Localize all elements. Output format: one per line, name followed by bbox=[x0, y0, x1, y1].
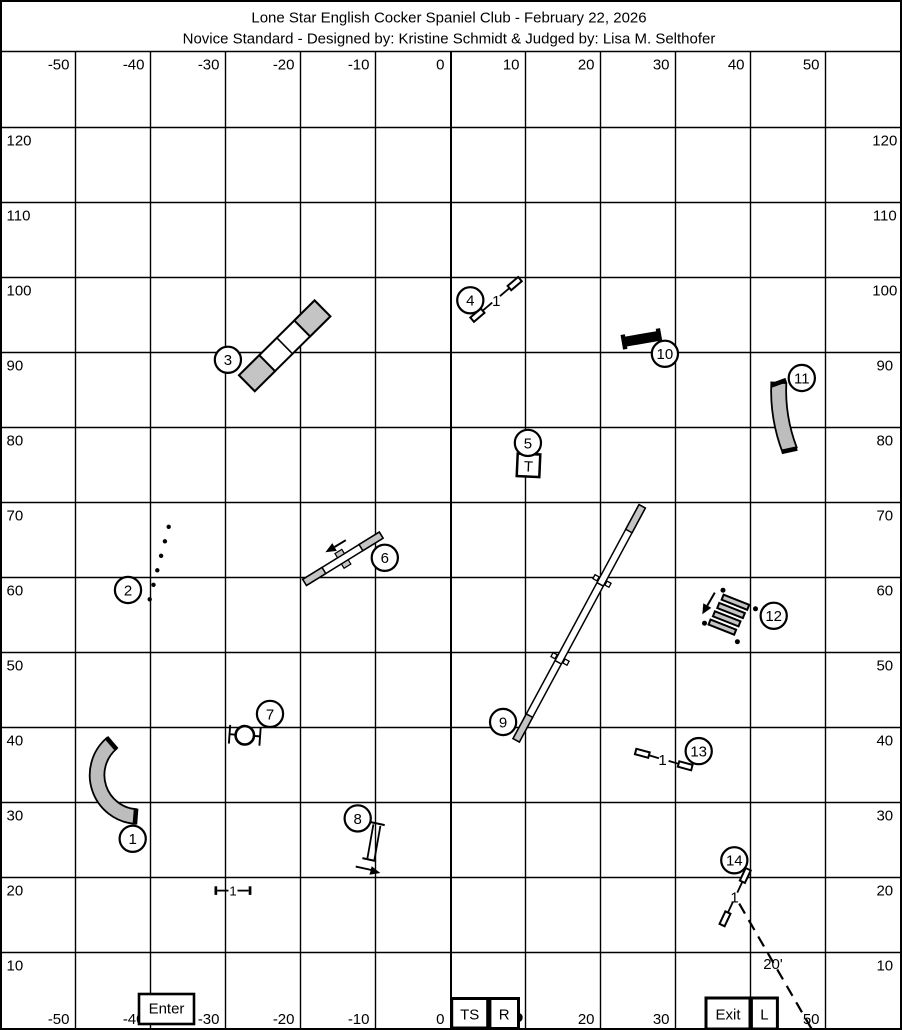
svg-text:14: 14 bbox=[726, 853, 743, 870]
svg-text:12: 12 bbox=[765, 608, 782, 625]
svg-text:L: L bbox=[760, 1006, 768, 1023]
svg-text:20: 20 bbox=[876, 883, 893, 900]
svg-text:-30: -30 bbox=[198, 1011, 220, 1028]
svg-text:60: 60 bbox=[876, 583, 893, 600]
svg-text:10: 10 bbox=[7, 958, 24, 975]
svg-text:11: 11 bbox=[794, 370, 810, 387]
svg-text:6: 6 bbox=[381, 550, 389, 567]
svg-text:20: 20 bbox=[578, 57, 595, 74]
svg-text:30: 30 bbox=[653, 1011, 670, 1028]
svg-text:1: 1 bbox=[492, 293, 500, 310]
svg-text:70: 70 bbox=[876, 508, 893, 525]
svg-text:1: 1 bbox=[229, 883, 236, 898]
svg-text:Enter: Enter bbox=[149, 1001, 185, 1018]
svg-text:90: 90 bbox=[876, 358, 893, 375]
svg-text:8: 8 bbox=[354, 811, 362, 828]
svg-text:-20: -20 bbox=[273, 57, 295, 74]
svg-text:7: 7 bbox=[266, 706, 274, 723]
svg-text:50: 50 bbox=[803, 57, 820, 74]
svg-text:80: 80 bbox=[7, 433, 24, 450]
svg-text:20: 20 bbox=[578, 1011, 595, 1028]
svg-text:120: 120 bbox=[7, 133, 32, 150]
svg-text:80: 80 bbox=[876, 433, 893, 450]
svg-text:0: 0 bbox=[436, 1011, 444, 1028]
svg-text:2: 2 bbox=[124, 582, 132, 599]
svg-text:100: 100 bbox=[7, 283, 32, 300]
svg-text:0: 0 bbox=[436, 57, 444, 74]
svg-text:70: 70 bbox=[7, 508, 24, 525]
svg-text:1: 1 bbox=[730, 890, 738, 907]
svg-text:Lone Star English Cocker Spani: Lone Star English Cocker Spaniel Club - … bbox=[251, 10, 646, 27]
svg-text:30: 30 bbox=[653, 57, 670, 74]
svg-text:4: 4 bbox=[466, 293, 474, 310]
svg-text:30: 30 bbox=[876, 808, 893, 825]
svg-text:5: 5 bbox=[524, 435, 532, 452]
svg-text:40: 40 bbox=[876, 733, 893, 750]
svg-text:20: 20 bbox=[7, 883, 24, 900]
svg-text:-10: -10 bbox=[348, 1011, 370, 1028]
svg-text:-50: -50 bbox=[48, 1011, 70, 1028]
svg-text:13: 13 bbox=[690, 744, 707, 761]
svg-text:110: 110 bbox=[7, 208, 31, 225]
svg-text:20': 20' bbox=[763, 956, 783, 973]
svg-text:R: R bbox=[499, 1007, 510, 1024]
svg-text:10: 10 bbox=[503, 57, 520, 74]
svg-text:40: 40 bbox=[7, 733, 24, 750]
svg-text:TS: TS bbox=[460, 1007, 479, 1024]
svg-text:50: 50 bbox=[7, 658, 24, 675]
svg-text:-10: -10 bbox=[348, 57, 370, 74]
svg-text:-50: -50 bbox=[48, 57, 70, 74]
svg-text:30: 30 bbox=[7, 808, 24, 825]
svg-text:T: T bbox=[523, 458, 533, 475]
svg-text:90: 90 bbox=[7, 358, 24, 375]
svg-text:110: 110 bbox=[873, 208, 897, 225]
svg-text:100: 100 bbox=[872, 283, 897, 300]
svg-text:Exit: Exit bbox=[715, 1006, 741, 1023]
svg-text:1: 1 bbox=[658, 752, 666, 769]
svg-text:120: 120 bbox=[872, 133, 897, 150]
svg-text:50: 50 bbox=[876, 658, 893, 675]
svg-text:-30: -30 bbox=[198, 57, 220, 74]
svg-text:9: 9 bbox=[499, 714, 507, 731]
svg-text:Novice Standard - Designed by:: Novice Standard - Designed by: Kristine … bbox=[183, 31, 716, 48]
svg-text:10: 10 bbox=[876, 958, 893, 975]
svg-text:-40: -40 bbox=[123, 57, 145, 74]
svg-text:1: 1 bbox=[129, 831, 137, 848]
svg-text:3: 3 bbox=[224, 352, 232, 369]
svg-text:60: 60 bbox=[7, 583, 24, 600]
svg-text:10: 10 bbox=[657, 346, 674, 363]
svg-text:40: 40 bbox=[728, 57, 745, 74]
svg-text:-20: -20 bbox=[273, 1011, 295, 1028]
